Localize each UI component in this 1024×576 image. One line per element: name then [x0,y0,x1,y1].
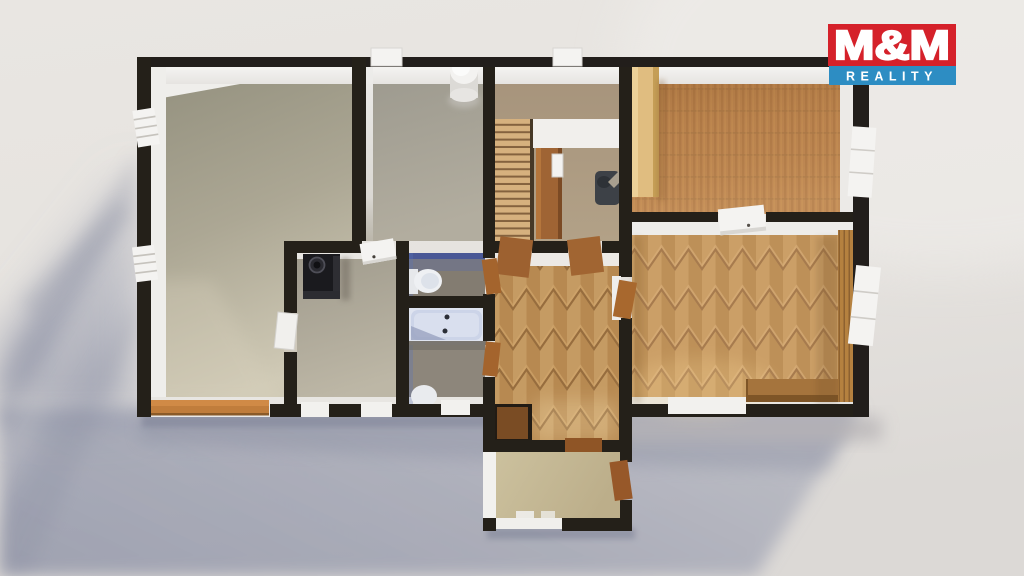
svg-text:REALITY: REALITY [846,70,938,84]
svg-text:M&M: M&M [834,22,950,68]
